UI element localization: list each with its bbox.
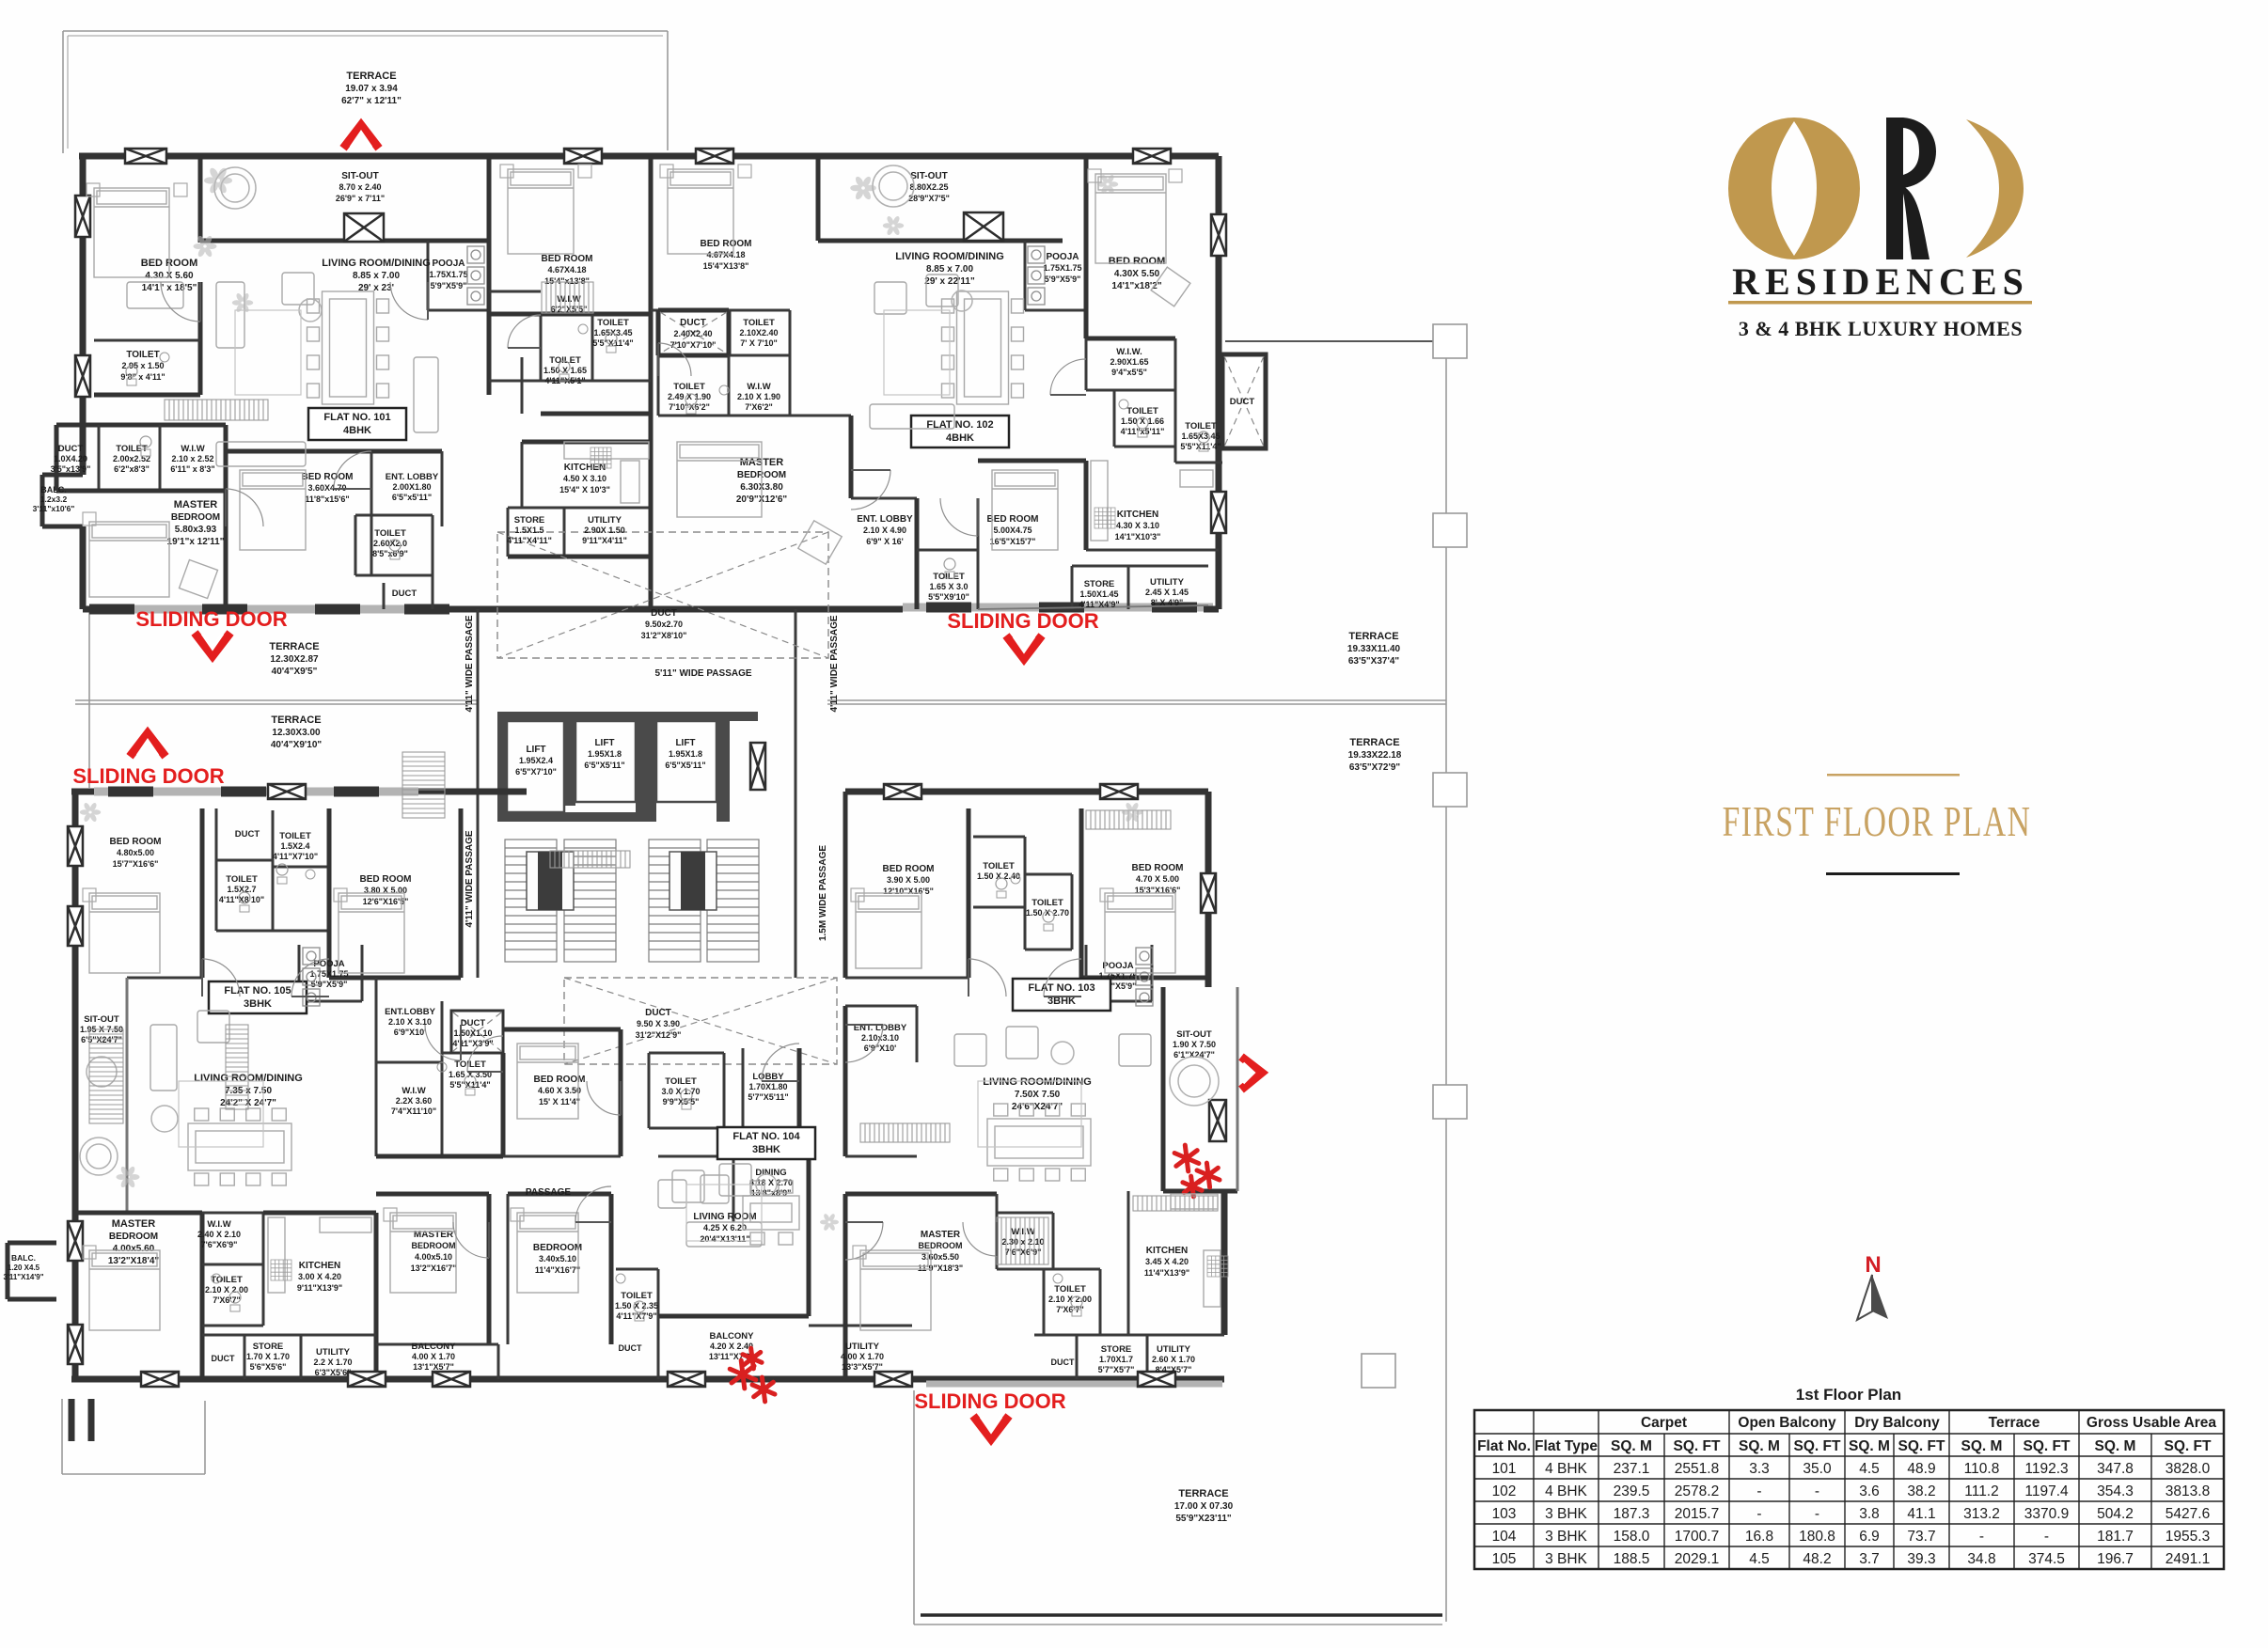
- svg-text:3.6: 3.6: [1859, 1483, 1880, 1499]
- svg-text:BED ROOM4.80x5.0015'7"X16'6": BED ROOM4.80x5.0015'7"X16'6": [110, 837, 162, 869]
- svg-text:KITCHEN4.30 X 3.1014'1"X10'3": KITCHEN4.30 X 3.1014'1"X10'3": [1115, 510, 1161, 541]
- svg-text:TOILET2.10X2.407' X 7'10": TOILET2.10X2.407' X 7'10": [739, 318, 778, 348]
- svg-text:TOILET2.95 x 1.509'8" x 4'11": TOILET2.95 x 1.509'8" x 4'11": [120, 350, 165, 382]
- svg-text:DUCT: DUCT: [235, 829, 260, 840]
- svg-text:1700.7: 1700.7: [1675, 1529, 1719, 1545]
- svg-text:TERRACE12.30X3.0040'4"X9'10": TERRACE12.30X3.0040'4"X9'10": [271, 714, 323, 750]
- svg-text:-: -: [1756, 1483, 1761, 1499]
- svg-text:SQ. FT: SQ. FT: [1898, 1438, 1945, 1454]
- svg-text:5'11" WIDE PASSAGE: 5'11" WIDE PASSAGE: [654, 668, 751, 679]
- svg-text:SQ. M: SQ. M: [1739, 1438, 1780, 1454]
- svg-text:181.7: 181.7: [2097, 1529, 2134, 1545]
- svg-text:TOILET1.50 X 2.354'11"X7'9": TOILET1.50 X 2.354'11"X7'9": [615, 1291, 658, 1321]
- svg-text:TOILET2.00x2.526'2"x8'3": TOILET2.00x2.526'2"x8'3": [113, 444, 150, 474]
- svg-text:POOJA1.75X1.755'9"X5'9": POOJA1.75X1.755'9"X5'9": [429, 259, 467, 290]
- svg-text:48.9: 48.9: [1907, 1461, 1935, 1477]
- svg-text:SQ. FT: SQ. FT: [1794, 1438, 1841, 1454]
- svg-text:3 BHK: 3 BHK: [1545, 1506, 1587, 1522]
- svg-text:111.2: 111.2: [1964, 1483, 1999, 1499]
- svg-text:237.1: 237.1: [1614, 1461, 1650, 1477]
- svg-text:BED ROOM4.30X 5.5014'1"x18'2": BED ROOM4.30X 5.5014'1"x18'2": [1109, 256, 1166, 291]
- svg-text:SQ. M: SQ. M: [1611, 1438, 1652, 1454]
- svg-text:FLAT NO. 101: FLAT NO. 101: [323, 412, 390, 423]
- svg-text:3828.0: 3828.0: [2166, 1461, 2211, 1477]
- svg-text:FLAT NO. 104: FLAT NO. 104: [732, 1131, 800, 1142]
- svg-text:TOILET1.50 X 2.70: TOILET1.50 X 2.70: [1026, 898, 1069, 918]
- svg-text:110.8: 110.8: [1964, 1461, 2000, 1477]
- svg-text:3813.8: 3813.8: [2166, 1483, 2210, 1499]
- svg-text:5427.6: 5427.6: [2166, 1506, 2210, 1522]
- svg-text:SQ. M: SQ. M: [1849, 1438, 1890, 1454]
- svg-text:4'11" WIDE PASSAGE: 4'11" WIDE PASSAGE: [465, 615, 475, 712]
- svg-text:FLAT NO. 105: FLAT NO. 105: [224, 985, 291, 997]
- svg-text:FLAT NO. 103: FLAT NO. 103: [1028, 982, 1095, 994]
- svg-text:UTILITY2.60 X 1.708'4"X5'7": UTILITY2.60 X 1.708'4"X5'7": [1152, 1344, 1195, 1374]
- svg-text:1192.3: 1192.3: [2024, 1461, 2068, 1477]
- svg-text:SIT-OUT8.70 x 2.4026'9" x 7'11: SIT-OUT8.70 x 2.4026'9" x 7'11": [336, 171, 385, 203]
- svg-text:Dry Balcony: Dry Balcony: [1854, 1415, 1940, 1431]
- svg-text:POOJA1.75X1.755'9"X5'9": POOJA1.75X1.755'9"X5'9": [1043, 252, 1081, 284]
- svg-text:48.2: 48.2: [1803, 1551, 1831, 1567]
- svg-text:Terrace: Terrace: [1989, 1415, 2040, 1431]
- svg-text:UTILITY4.00 X 1.7013'3"X5'7": UTILITY4.00 X 1.7013'3"X5'7": [841, 1342, 884, 1372]
- svg-text:-: -: [2044, 1529, 2049, 1545]
- svg-text:BEDROOM3.40x5.1011'4"X16'7": BEDROOM3.40x5.1011'4"X16'7": [533, 1243, 582, 1275]
- svg-text:38.2: 38.2: [1907, 1483, 1935, 1499]
- svg-text:2578.2: 2578.2: [1675, 1483, 1719, 1499]
- svg-text:73.7: 73.7: [1907, 1529, 1935, 1545]
- svg-text:354.3: 354.3: [2097, 1483, 2134, 1499]
- svg-text:TERRACE19.07 x 3.9462'7" x 12': TERRACE19.07 x 3.9462'7" x 12'11": [341, 71, 402, 106]
- svg-text:STORE1.70X1.75'7"X5'7": STORE1.70X1.75'7"X5'7": [1098, 1344, 1135, 1374]
- svg-text:3BHK: 3BHK: [244, 998, 272, 1010]
- svg-text:DUCT: DUCT: [212, 1354, 235, 1363]
- svg-text:101: 101: [1492, 1461, 1517, 1477]
- svg-text:2015.7: 2015.7: [1675, 1506, 1719, 1522]
- svg-text:35.0: 35.0: [1803, 1461, 1832, 1477]
- svg-text:104: 104: [1492, 1529, 1517, 1545]
- svg-text:KITCHEN3.45 X 4.2011'4"X13'9": KITCHEN3.45 X 4.2011'4"X13'9": [1144, 1246, 1189, 1278]
- svg-text:504.2: 504.2: [2097, 1506, 2134, 1522]
- svg-text:374.5: 374.5: [2028, 1551, 2065, 1567]
- svg-text:STORE1.70 X 1.705'6"X5'6": STORE1.70 X 1.705'6"X5'6": [246, 1342, 290, 1372]
- svg-text:SIT-OUT1.90 X 7.506'1"X24'7": SIT-OUT1.90 X 7.506'1"X24'7": [1173, 1029, 1216, 1059]
- svg-text:105: 105: [1492, 1551, 1517, 1567]
- svg-text:Open Balcony: Open Balcony: [1738, 1415, 1836, 1431]
- svg-text:4BHK: 4BHK: [343, 425, 371, 436]
- svg-text:4'11" WIDE PASSAGE: 4'11" WIDE PASSAGE: [829, 615, 840, 712]
- svg-text:STORE1.50X1.454'11"X4'9": STORE1.50X1.454'11"X4'9": [1079, 579, 1119, 609]
- svg-text:SQ. FT: SQ. FT: [2165, 1438, 2212, 1454]
- svg-text:-: -: [1815, 1506, 1819, 1522]
- svg-text:DUCT: DUCT: [1051, 1358, 1075, 1367]
- svg-text:4.5: 4.5: [1749, 1551, 1770, 1567]
- svg-text:Flat Type: Flat Type: [1535, 1438, 1598, 1454]
- svg-text:-: -: [1815, 1483, 1819, 1499]
- svg-text:4 BHK: 4 BHK: [1545, 1483, 1587, 1499]
- svg-text:41.1: 41.1: [1907, 1506, 1935, 1522]
- svg-text:3.3: 3.3: [1749, 1461, 1770, 1477]
- svg-text:DUCT: DUCT: [619, 1343, 642, 1353]
- svg-text:3.8: 3.8: [1859, 1506, 1880, 1522]
- svg-text:ENT. LOBBY2.00X1.806'5"x5'11": ENT. LOBBY2.00X1.806'5"x5'11": [386, 472, 439, 502]
- svg-text:N: N: [1865, 1252, 1881, 1278]
- svg-text:2551.8: 2551.8: [1675, 1461, 1719, 1477]
- svg-text:LOBBY1.70X1.805'7"X5'11": LOBBY1.70X1.805'7"X5'11": [748, 1072, 788, 1102]
- svg-text:187.3: 187.3: [1614, 1506, 1650, 1522]
- svg-text:UTILITY2.90X 1.509'11"X4'11": UTILITY2.90X 1.509'11"X4'11": [582, 515, 627, 545]
- svg-text:188.5: 188.5: [1614, 1551, 1650, 1567]
- svg-text:BALCONY4.00 X 1.7013'1"X5'7": BALCONY4.00 X 1.7013'1"X5'7": [412, 1342, 457, 1372]
- svg-text:16.8: 16.8: [1745, 1529, 1773, 1545]
- svg-text:SLIDING DOOR: SLIDING DOOR: [135, 607, 287, 631]
- svg-text:TOILET3.0 X 1.709'9"X5'5": TOILET3.0 X 1.709'9"X5'5": [661, 1076, 700, 1107]
- svg-text:BED ROOM5.00X4.7516'5"X15'7": BED ROOM5.00X4.7516'5"X15'7": [987, 514, 1039, 546]
- svg-text:4.5: 4.5: [1859, 1461, 1880, 1477]
- svg-text:1st Floor Plan: 1st Floor Plan: [1796, 1386, 1901, 1404]
- svg-text:PASSAGE: PASSAGE: [526, 1187, 571, 1198]
- svg-text:RESIDENCES: RESIDENCES: [1732, 260, 2029, 303]
- svg-text:SQ. M: SQ. M: [2095, 1438, 2136, 1454]
- svg-text:158.0: 158.0: [1614, 1529, 1650, 1545]
- svg-text:TERRACE12.30X2.8740'4"X9'5": TERRACE12.30X2.8740'4"X9'5": [269, 641, 319, 677]
- svg-text:3 & 4 BHK LUXURY HOMES: 3 & 4 BHK LUXURY HOMES: [1739, 317, 2023, 340]
- svg-text:BED ROOM3.90 X 5.0012'10"X16'5: BED ROOM3.90 X 5.0012'10"X16'5": [883, 864, 935, 896]
- svg-text:BED ROOM4.67X4.1815'4"x13'8": BED ROOM4.67X4.1815'4"x13'8": [542, 254, 593, 286]
- svg-text:TOILET1.65X3.455'5"X11'4": TOILET1.65X3.455'5"X11'4": [1180, 421, 1221, 451]
- svg-text:SQ. FT: SQ. FT: [1674, 1438, 1721, 1454]
- svg-text:Carpet: Carpet: [1641, 1415, 1687, 1431]
- svg-text:-: -: [1979, 1529, 1984, 1545]
- svg-text:239.5: 239.5: [1614, 1483, 1650, 1499]
- svg-text:103: 103: [1492, 1506, 1517, 1522]
- svg-text:DUCT: DUCT: [1230, 397, 1255, 407]
- svg-text:TOILET1.50 X 2.40: TOILET1.50 X 2.40: [977, 861, 1020, 881]
- svg-text:BED ROOM3.80 X 5.0012'6"X16'5": BED ROOM3.80 X 5.0012'6"X16'5": [360, 874, 412, 906]
- svg-text:BED ROOM4.70 X 5.0015'3"X16'6": BED ROOM4.70 X 5.0015'3"X16'6": [1132, 863, 1184, 895]
- svg-text:BED ROOM4.67X4.1815'4"X13'8": BED ROOM4.67X4.1815'4"X13'8": [701, 239, 752, 271]
- svg-text:3 BHK: 3 BHK: [1545, 1529, 1587, 1545]
- svg-text:34.8: 34.8: [1967, 1551, 1995, 1567]
- svg-text:3.7: 3.7: [1859, 1551, 1880, 1567]
- svg-text:TOILET1.65 X 3.05'5"X9'10": TOILET1.65 X 3.05'5"X9'10": [928, 572, 969, 602]
- svg-text:TOILET1.65 X 3.505'5"X11'4": TOILET1.65 X 3.505'5"X11'4": [449, 1059, 492, 1090]
- svg-text:4BHK: 4BHK: [946, 432, 974, 444]
- svg-text:BED ROOM4.60 X 3.5015' X 11'4": BED ROOM4.60 X 3.5015' X 11'4": [534, 1075, 586, 1107]
- svg-text:4 BHK: 4 BHK: [1545, 1461, 1587, 1477]
- svg-text:FIRST FLOOR PLAN: FIRST FLOOR PLAN: [1723, 797, 2032, 845]
- svg-text:347.8: 347.8: [2097, 1461, 2134, 1477]
- svg-text:180.8: 180.8: [1799, 1529, 1835, 1545]
- svg-text:3BHK: 3BHK: [752, 1144, 780, 1155]
- svg-text:SLIDING DOOR: SLIDING DOOR: [72, 764, 224, 788]
- svg-text:UTILITY2.45 X 1.458' X 4'9": UTILITY2.45 X 1.458' X 4'9": [1145, 577, 1189, 607]
- svg-text:TERRACE19.33X11.4063'5"X37'4": TERRACE19.33X11.4063'5"X37'4": [1347, 631, 1401, 667]
- svg-text:2029.1: 2029.1: [1675, 1551, 1719, 1567]
- svg-text:TERRACE17.00 X 07.3055'9"X23'1: TERRACE17.00 X 07.3055'9"X23'11": [1174, 1488, 1234, 1524]
- svg-text:SLIDING DOOR: SLIDING DOOR: [914, 1389, 1065, 1413]
- svg-text:39.3: 39.3: [1907, 1551, 1935, 1567]
- svg-text:KITCHEN3.00 X 4.209'11"X13'9": KITCHEN3.00 X 4.209'11"X13'9": [297, 1261, 342, 1293]
- svg-text:TOILET1.50 X 1.664'11"x5'11": TOILET1.50 X 1.664'11"x5'11": [1121, 406, 1165, 436]
- svg-text:SQ. FT: SQ. FT: [2024, 1438, 2071, 1454]
- svg-text:SLIDING DOOR: SLIDING DOOR: [947, 609, 1098, 633]
- svg-text:1.5M WIDE PASSAGE: 1.5M WIDE PASSAGE: [818, 845, 828, 941]
- svg-text:2491.1: 2491.1: [2166, 1551, 2210, 1567]
- svg-text:6.9: 6.9: [1859, 1529, 1880, 1545]
- svg-text:3 BHK: 3 BHK: [1545, 1551, 1587, 1567]
- svg-text:102: 102: [1492, 1483, 1517, 1499]
- svg-text:Gross Usable Area: Gross Usable Area: [2087, 1415, 2217, 1431]
- svg-text:SQ. M: SQ. M: [1961, 1438, 2003, 1454]
- svg-text:1197.4: 1197.4: [2024, 1483, 2069, 1499]
- svg-text:TERRACE19.33X22.1863'5"X72'9": TERRACE19.33X22.1863'5"X72'9": [1348, 737, 1402, 773]
- svg-text:DUCT: DUCT: [392, 589, 417, 599]
- svg-text:UTILITY2.2 X 1.706'3"X5'6": UTILITY2.2 X 1.706'3"X5'6": [313, 1347, 352, 1377]
- svg-text:1955.3: 1955.3: [2166, 1529, 2210, 1545]
- svg-text:-: -: [1756, 1506, 1761, 1522]
- svg-text:Flat No.: Flat No.: [1477, 1438, 1531, 1454]
- svg-text:3370.9: 3370.9: [2024, 1506, 2069, 1522]
- svg-text:4'11" WIDE PASSAGE: 4'11" WIDE PASSAGE: [465, 830, 475, 927]
- svg-text:313.2: 313.2: [1963, 1506, 2000, 1522]
- svg-text:196.7: 196.7: [2097, 1551, 2134, 1567]
